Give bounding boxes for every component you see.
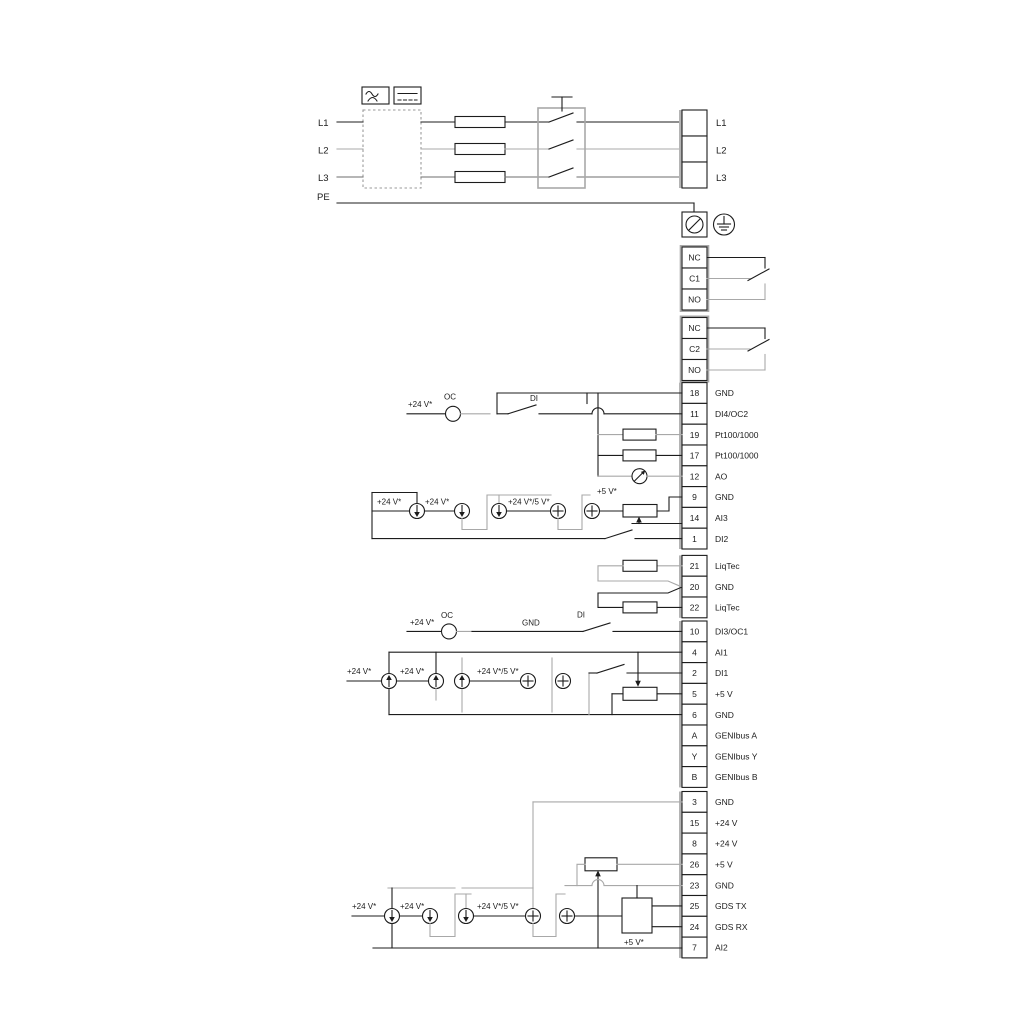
relay1-nc: NC (688, 253, 700, 263)
fuse-l1 (455, 117, 505, 128)
terminal-label: GDS TX (715, 901, 747, 911)
phase-l3-wire (337, 168, 682, 183)
terminal-label: GENIbus A (715, 731, 757, 741)
voltage-source-icon (521, 674, 536, 689)
liqtec-wiring (598, 560, 682, 613)
analog-meter-icon (632, 469, 647, 484)
current-source-icon (492, 495, 507, 519)
fuse-l3 (455, 172, 505, 183)
v24-label: +24 V* (425, 498, 449, 507)
mains-label-l2: L2 (318, 146, 329, 157)
di-label: DI (577, 611, 585, 620)
open-collector-icon (446, 406, 461, 421)
pt100-resistor (623, 450, 656, 461)
current-source-icon (455, 674, 470, 689)
mains-section: L1 L2 L3 PE (317, 87, 735, 237)
ai3-option-cluster: +24 V* +24 V* +24 V*/5 V* (372, 487, 682, 539)
fuse-l2 (455, 144, 505, 155)
current-source-icon (410, 493, 425, 519)
terminal-number: 6 (692, 710, 697, 720)
terminal-number: 10 (690, 627, 700, 637)
terminal-number: Y (692, 751, 698, 761)
earth-ground-icon (714, 214, 735, 235)
v24-label: +24 V* (408, 400, 432, 409)
liqtec-terminal-strip: 21 20 22 LiqTec GND LiqTec (679, 555, 740, 617)
terminal-label: GENIbus B (715, 772, 758, 782)
terminal-label: GND (715, 797, 734, 807)
gds-sensor-box (622, 898, 652, 933)
v24-label: +24 V* (400, 902, 424, 911)
relay2-nc: NC (688, 323, 700, 333)
relay2-c2: C2 (689, 344, 700, 354)
terminal-label: GND (715, 710, 734, 720)
mains-label-l3: L3 (318, 173, 329, 184)
terminal-number: 11 (690, 409, 699, 419)
io1-terminal-strip: 18 11 19 17 12 9 14 1 GND DI4/OC2 Pt100/… (679, 383, 759, 549)
mains-label-pe: PE (317, 192, 330, 203)
terminal-label: GDS RX (715, 922, 748, 932)
terminal-number: 21 (690, 561, 700, 571)
io2-wiring: +24 V* OC GND DI (407, 611, 682, 639)
io3-terminal-strip: 3 15 8 26 23 25 24 7 GND +24 V +24 V +5 … (679, 792, 748, 958)
liqtec-sensor-resistor (623, 602, 657, 613)
terminal-number: 9 (692, 492, 697, 502)
terminal-label: GND (715, 388, 734, 398)
terminal-number: 22 (690, 603, 700, 613)
di-label: DI (530, 394, 538, 403)
dc-symbol-box (394, 87, 421, 104)
mains-out-l3: L3 (716, 173, 727, 184)
drive-dashed-box (363, 110, 421, 188)
v24-5v-label: +24 V*/5 V* (508, 498, 550, 507)
terminal-label: GND (715, 492, 734, 502)
current-source-icon (429, 652, 444, 700)
terminal-label: DI2 (715, 534, 729, 544)
voltage-source-icon (585, 504, 600, 519)
potentiometer (623, 687, 657, 700)
relay1-contact (707, 258, 769, 300)
wiring-diagram: L1 L2 L3 PE (0, 0, 1024, 1024)
open-collector-icon (442, 624, 457, 639)
terminal-label: AO (715, 471, 728, 481)
current-source-icon (455, 504, 470, 519)
terminal-number: 7 (692, 943, 697, 953)
current-source-icon (385, 888, 400, 948)
terminal-label: GENIbus Y (715, 751, 758, 761)
terminal-label: +5 V (715, 860, 733, 870)
phase-l1-wire (337, 113, 682, 128)
voltage-source-icon (556, 674, 571, 689)
v24-label: +24 V* (352, 902, 376, 911)
v24-5v-label: +24 V*/5 V* (477, 667, 519, 676)
mains-label-l1: L1 (318, 118, 329, 129)
v24-label: +24 V* (400, 667, 424, 676)
current-source-icon (382, 674, 397, 689)
oc-label: OC (441, 611, 453, 620)
terminal-number: A (692, 731, 698, 741)
terminal-number: 4 (692, 647, 697, 657)
terminal-number: 5 (692, 689, 697, 699)
wiper-arrow-icon (635, 681, 641, 687)
oc-label: OC (444, 393, 456, 402)
terminal-label: Pt100/1000 (715, 451, 759, 461)
voltage-source-icon (551, 504, 566, 519)
terminal-label: GND (715, 880, 734, 890)
ac-symbol-box (362, 87, 389, 104)
terminal-label: LiqTec (715, 561, 740, 571)
v5-label: +5 V* (624, 938, 644, 947)
phase-l2-wire (337, 140, 682, 155)
voltage-source-icon (526, 888, 541, 924)
gnd-label: GND (522, 619, 540, 628)
terminal-label: GND (715, 582, 734, 592)
diagram-canvas: L1 L2 L3 PE (0, 0, 1024, 1024)
terminal-number: 18 (690, 388, 700, 398)
mains-out-l2: L2 (716, 146, 727, 157)
terminal-number: 26 (690, 860, 700, 870)
terminal-number: 24 (690, 922, 700, 932)
terminal-label: DI4/OC2 (715, 409, 748, 419)
terminal-number: 3 (692, 797, 697, 807)
terminal-number: 17 (690, 451, 700, 461)
current-source-icon (459, 894, 474, 924)
ai1-option-cluster: +24 V* +24 V* +24 V*/5 V* (347, 652, 682, 714)
terminal-label: +5 V (715, 689, 733, 699)
terminal-label: DI3/OC1 (715, 627, 748, 637)
terminal-number: 23 (690, 880, 700, 890)
terminal-number: 8 (692, 839, 697, 849)
terminal-number: B (692, 772, 698, 782)
terminal-number: 20 (690, 582, 700, 592)
terminal-number: 12 (690, 471, 700, 481)
terminal-label: AI3 (715, 513, 728, 523)
mains-terminal-block: L1 L2 L3 (679, 110, 727, 188)
terminal-label: DI1 (715, 668, 729, 678)
v24-5v-label: +24 V*/5 V* (477, 902, 519, 911)
terminal-label: AI2 (715, 943, 728, 953)
terminal-label: +24 V (715, 839, 738, 849)
pt100-resistor (623, 429, 656, 440)
liqtec-sensor-resistor (623, 560, 657, 571)
v24-label: +24 V* (347, 667, 371, 676)
terminal-number: 14 (690, 513, 700, 523)
terminal-number: 19 (690, 430, 700, 440)
current-source-icon (423, 909, 438, 924)
potentiometer (585, 858, 617, 871)
terminal-label: LiqTec (715, 603, 740, 613)
potentiometer (623, 505, 657, 518)
relay1-no: NO (688, 295, 701, 305)
terminal-number: 25 (690, 901, 700, 911)
terminal-number: 1 (692, 534, 697, 544)
terminal-number: 2 (692, 668, 697, 678)
io1-wiring: DI +24 V* OC (407, 393, 682, 484)
v5-label: +5 V* (597, 487, 617, 496)
ai2-option-cluster: +24 V* +24 V* +24 V*/5 V* (352, 802, 682, 948)
relay1-c1: C1 (689, 274, 700, 284)
mains-out-l1: L1 (716, 118, 727, 129)
relay1-block: NC C1 NO (681, 246, 770, 311)
v24-label: +24 V* (410, 618, 434, 627)
relay2-no: NO (688, 365, 701, 375)
terminal-label: Pt100/1000 (715, 430, 759, 440)
v24-label: +24 V* (377, 498, 401, 507)
terminal-label: +24 V (715, 818, 738, 828)
main-switch (538, 97, 585, 188)
terminal-number: 15 (690, 818, 700, 828)
voltage-source-icon (560, 909, 575, 924)
relay2-block: NC C2 NO (681, 316, 770, 381)
terminal-label: AI1 (715, 647, 728, 657)
pe-section (337, 203, 735, 237)
relay2-contact (707, 328, 769, 370)
io2-terminal-strip: 10 4 2 5 6 A Y B DI3/OC1 AI1 DI1 +5 V GN… (679, 621, 758, 787)
